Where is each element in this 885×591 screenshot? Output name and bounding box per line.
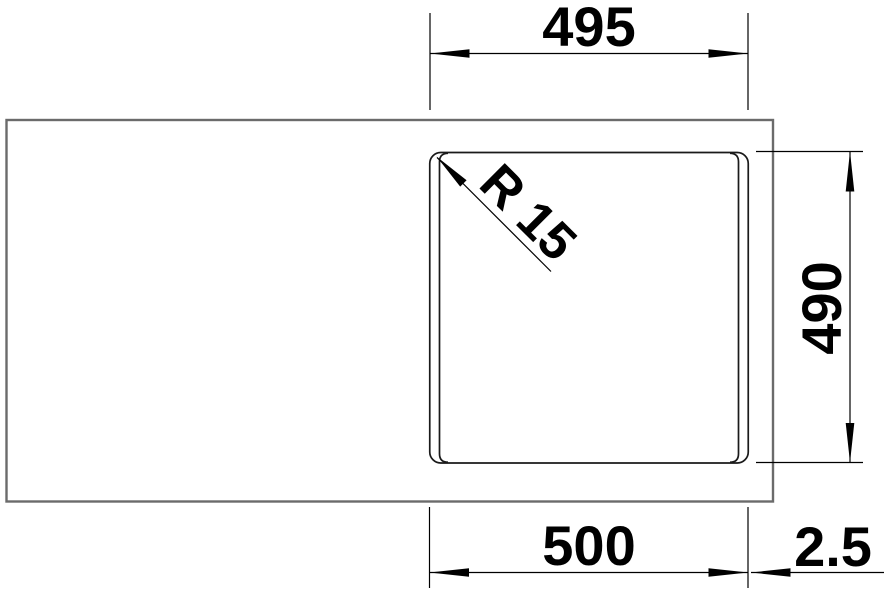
arrowhead-right-icon — [709, 568, 749, 577]
arrowhead-left-icon — [751, 568, 791, 577]
arrowhead-right-icon — [709, 49, 749, 58]
countertop-outline — [7, 120, 774, 502]
arrowhead-left-icon — [430, 568, 470, 577]
dimension-bottom-width: 500 — [430, 507, 749, 588]
countertop — [7, 120, 774, 502]
dimension-label-495: 495 — [542, 0, 635, 58]
dimension-label-490: 490 — [790, 261, 853, 354]
dimension-rim-offset: 2.5 — [751, 515, 884, 578]
sink-dimension-drawing: 495 490 500 2.5 — [0, 0, 885, 591]
drawing-canvas: 495 490 500 2.5 — [0, 0, 885, 591]
arrowhead-left-icon — [430, 49, 470, 58]
dimension-label-500: 500 — [542, 514, 635, 577]
arrowhead-down-icon — [846, 423, 855, 463]
dimension-top-width: 495 — [430, 0, 748, 110]
arrowhead-up-icon — [846, 152, 855, 192]
dimension-label-2-5: 2.5 — [794, 515, 872, 578]
